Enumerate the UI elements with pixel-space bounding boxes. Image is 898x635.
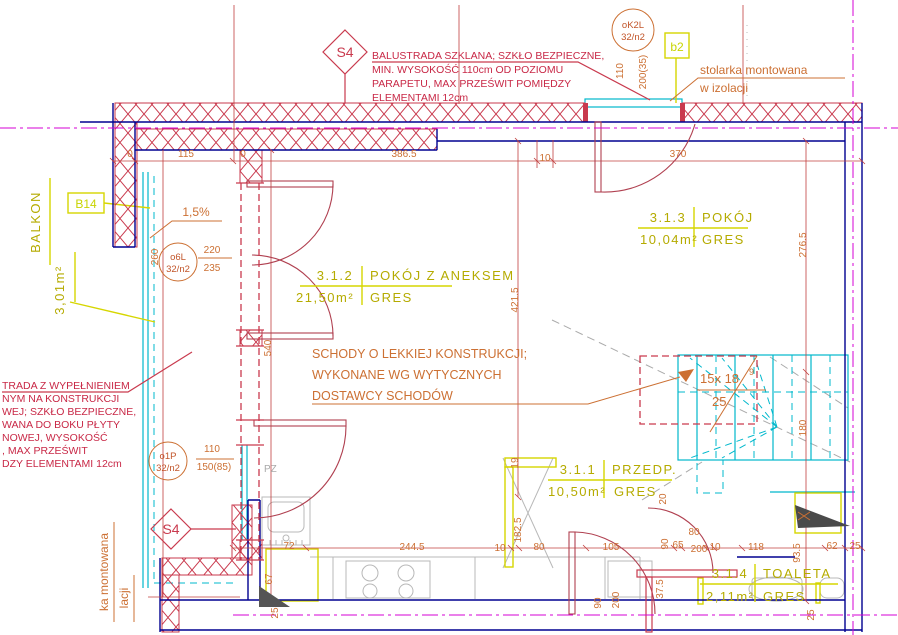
dimension-label: 25 bbox=[270, 607, 281, 619]
stolarka-top-line2: w izolacji bbox=[699, 81, 748, 95]
room-313-name: POKÓJ bbox=[702, 210, 754, 225]
room-311-floor: GRES bbox=[614, 484, 657, 499]
balustrade-note-line4: ELEMENTAMI 12cm bbox=[372, 92, 468, 104]
dimension-label: 10 bbox=[709, 542, 721, 553]
dimension-label: 90 bbox=[593, 597, 604, 609]
room-314-area: 2,11m² bbox=[706, 589, 755, 604]
left-note-line5: NOWEJ, WYSOKOŚĆ bbox=[2, 431, 108, 444]
dimension-label: 25 bbox=[806, 609, 817, 621]
left-note-line2: NYM NA KONSTRUKCJI bbox=[2, 393, 119, 405]
dimension-label: 0 bbox=[240, 149, 246, 160]
dimension-label: 235 bbox=[204, 263, 221, 274]
balkon-area: 3,01m² bbox=[52, 265, 67, 314]
stairs-note-arrow bbox=[678, 369, 694, 382]
dimension-label: 540 bbox=[263, 339, 274, 356]
dimension-label: 220 bbox=[204, 245, 221, 256]
room-label-313: 3.1.3 POKÓJ 10,04m² GRES bbox=[638, 207, 754, 247]
balustrade-note-line2: MIN. WYSOKOŚĆ 110cm OD POZIOMU bbox=[372, 63, 563, 76]
dimension-label: 10 bbox=[539, 153, 551, 164]
stairs-note-line3: DOSTAWCY SCHODÓW bbox=[312, 388, 453, 403]
stairs-note-line2: WYKONANE WG WYTYCZNYCH bbox=[312, 368, 502, 382]
dimension-label: 10 bbox=[494, 543, 506, 554]
left-note-line1: TRADA Z WYPEŁNIENIEM bbox=[2, 380, 130, 392]
dimension-label: 67 bbox=[264, 573, 275, 585]
dimension-label: 200 bbox=[611, 591, 622, 608]
stair-tread-label: 25 bbox=[712, 394, 726, 409]
floor-plan-svg: S4 S4 oK2L 32/n2 o6L 32/n2 o1P 32/n2 B14… bbox=[0, 0, 898, 635]
projection-lines bbox=[552, 320, 850, 500]
window-top bbox=[585, 99, 682, 107]
stolarka-left-line2: lacji bbox=[117, 588, 131, 609]
shaft-cross-brace bbox=[503, 458, 553, 568]
wc-toilet bbox=[820, 578, 844, 598]
dimension-lines-layer bbox=[110, 5, 865, 604]
wall-top-left bbox=[115, 103, 585, 122]
floor-plan-canvas: S4 S4 oK2L 32/n2 o6L 32/n2 o1P 32/n2 B14… bbox=[0, 0, 898, 635]
room-311-num: 3.1.1 bbox=[560, 462, 596, 477]
room-314-floor: GRES bbox=[763, 589, 806, 604]
o1p-line1: o1P bbox=[160, 451, 177, 462]
room-label-311: 3.1.1 PRZEDP. 10,50m² GRES bbox=[548, 460, 677, 499]
marks-layer bbox=[259, 505, 850, 607]
dimension-label: 110 bbox=[204, 444, 220, 455]
dimension-label: 118 bbox=[748, 542, 764, 553]
room-314-num: 3.1.4 bbox=[712, 566, 748, 581]
dimension-label: 80 bbox=[688, 527, 700, 538]
entrance-door-leaf bbox=[569, 532, 575, 614]
dimension-label: 386.5 bbox=[391, 149, 416, 160]
room-label-314: 3.1.4 TOALETA 2,11m² GRES bbox=[700, 564, 838, 604]
dimension-label: 25 bbox=[849, 541, 861, 552]
ok2l-line1: oK2L bbox=[622, 20, 644, 31]
room-312-num: 3.1.2 bbox=[317, 268, 353, 283]
dimension-label: 93.5 bbox=[792, 543, 803, 563]
dimension-label: 200 bbox=[691, 544, 708, 555]
left-note-line7: DZY ELEMENTAMI 12cm bbox=[2, 458, 122, 470]
room-312-area: 21,50m² bbox=[296, 290, 354, 305]
room-label-312: 3.1.2 POKÓJ Z ANEKSEM 21,50m² GRES bbox=[296, 266, 515, 305]
dimension-label: 65 bbox=[672, 540, 684, 551]
s4-bottom-label: S4 bbox=[162, 521, 179, 537]
room-312-name: POKÓJ Z ANEKSEM bbox=[370, 268, 515, 283]
stairs-note-line1: SCHODY O LEKKIEJ KONSTRUKCJI; bbox=[312, 347, 527, 361]
dimension-label: 72 bbox=[283, 541, 295, 552]
door-leaf-room313 bbox=[595, 122, 601, 192]
stolarka-left-line1: ka montowana bbox=[97, 533, 111, 611]
dimension-label: 20 bbox=[658, 493, 669, 505]
dimension-label: 182.5 bbox=[513, 517, 524, 542]
room-313-num: 3.1.3 bbox=[650, 210, 686, 225]
room-311-area: 10,50m² bbox=[548, 484, 606, 499]
o1p-line2: 32/n2 bbox=[156, 463, 180, 474]
dimension-label: 19 bbox=[510, 457, 521, 469]
room-314-name: TOALETA bbox=[763, 566, 832, 581]
shadow-wedge bbox=[259, 586, 290, 607]
wall-top-inner bbox=[135, 129, 437, 150]
balustrade-note-line1: BALUSTRADA SZKLANA; SZKŁO BEZPIECZNE, bbox=[372, 50, 604, 62]
dimension-label: 110 bbox=[615, 63, 626, 79]
room-312-floor: GRES bbox=[370, 290, 413, 305]
dimension-label: 244.5 bbox=[399, 542, 424, 553]
cooktop bbox=[346, 561, 430, 598]
o6l-line2: 32/n2 bbox=[166, 264, 190, 275]
dimension-label: 37.5 bbox=[655, 579, 666, 599]
dimension-label: 276.5 bbox=[798, 232, 809, 257]
dimension-label: 150(85) bbox=[197, 462, 231, 473]
wall-top-right bbox=[682, 103, 862, 122]
shaft-wall-left bbox=[505, 467, 513, 567]
stolarka-top-line1: stolarka montowana bbox=[700, 63, 808, 77]
balustrade-note-line3: PARAPETU, MAX PRZEŚWIT POMIĘDZY bbox=[372, 77, 571, 90]
kitchen-door-leaf bbox=[254, 420, 346, 426]
dimension-label: 105 bbox=[603, 542, 620, 553]
pz-label: PZ bbox=[264, 464, 277, 475]
kitchen-counter bbox=[310, 557, 640, 599]
stair-count-label: 15x 18 bbox=[700, 371, 739, 386]
dimension-label: 62 bbox=[826, 541, 838, 552]
room-311-name: PRZEDP. bbox=[612, 462, 677, 477]
dimension-label: 90 bbox=[660, 538, 671, 550]
dimension-label: 180 bbox=[798, 419, 809, 436]
balkon-name: BALKON bbox=[28, 191, 43, 253]
left-note-line3: WEJ; SZKŁO BEZPIECZNE, bbox=[2, 406, 136, 418]
room-313-area: 10,04m² bbox=[640, 232, 698, 247]
dimension-label: 115 bbox=[178, 149, 194, 160]
slope-label: 1,5% bbox=[182, 205, 210, 219]
dimension-label: 80 bbox=[533, 542, 545, 553]
b2-label: b2 bbox=[670, 40, 684, 54]
wall-left bbox=[115, 122, 137, 247]
room-313-floor: GRES bbox=[702, 232, 745, 247]
ok2l-line2: 32/n2 bbox=[621, 32, 645, 43]
balcony-door-swing-1 bbox=[252, 184, 333, 265]
dimension-label: 421.5 bbox=[510, 287, 521, 312]
dimension-label: 370 bbox=[670, 149, 687, 160]
dimension-label: 260 bbox=[150, 248, 161, 265]
b14-label: B14 bbox=[75, 197, 97, 211]
s4-top-label: S4 bbox=[336, 44, 353, 60]
left-note-line6: , MAX PRZEŚWIT bbox=[2, 444, 88, 457]
dimension-label: 0 bbox=[127, 149, 133, 160]
left-note-line4: WANA DO BOKU PŁYTY bbox=[2, 419, 120, 431]
dimension-label: 200(35) bbox=[638, 55, 649, 89]
o6l-line1: o6L bbox=[170, 252, 186, 263]
